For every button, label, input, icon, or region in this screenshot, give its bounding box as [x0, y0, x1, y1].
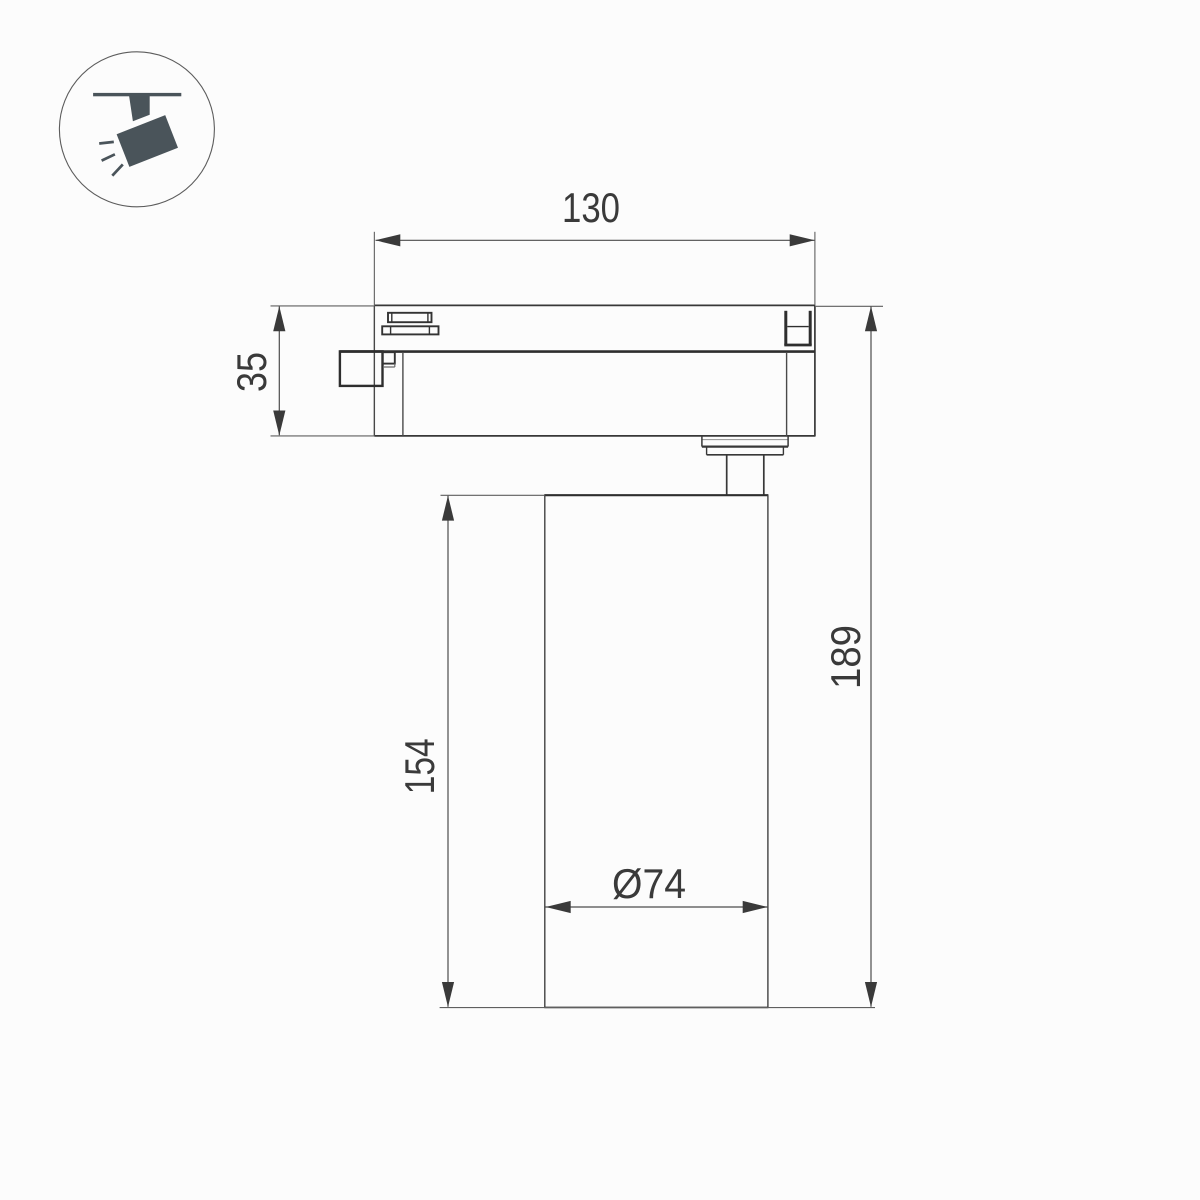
svg-text:130: 130: [562, 184, 620, 231]
svg-text:Ø74: Ø74: [612, 860, 686, 907]
svg-text:35: 35: [228, 352, 275, 392]
svg-text:154: 154: [396, 738, 443, 794]
svg-text:189: 189: [822, 625, 869, 689]
